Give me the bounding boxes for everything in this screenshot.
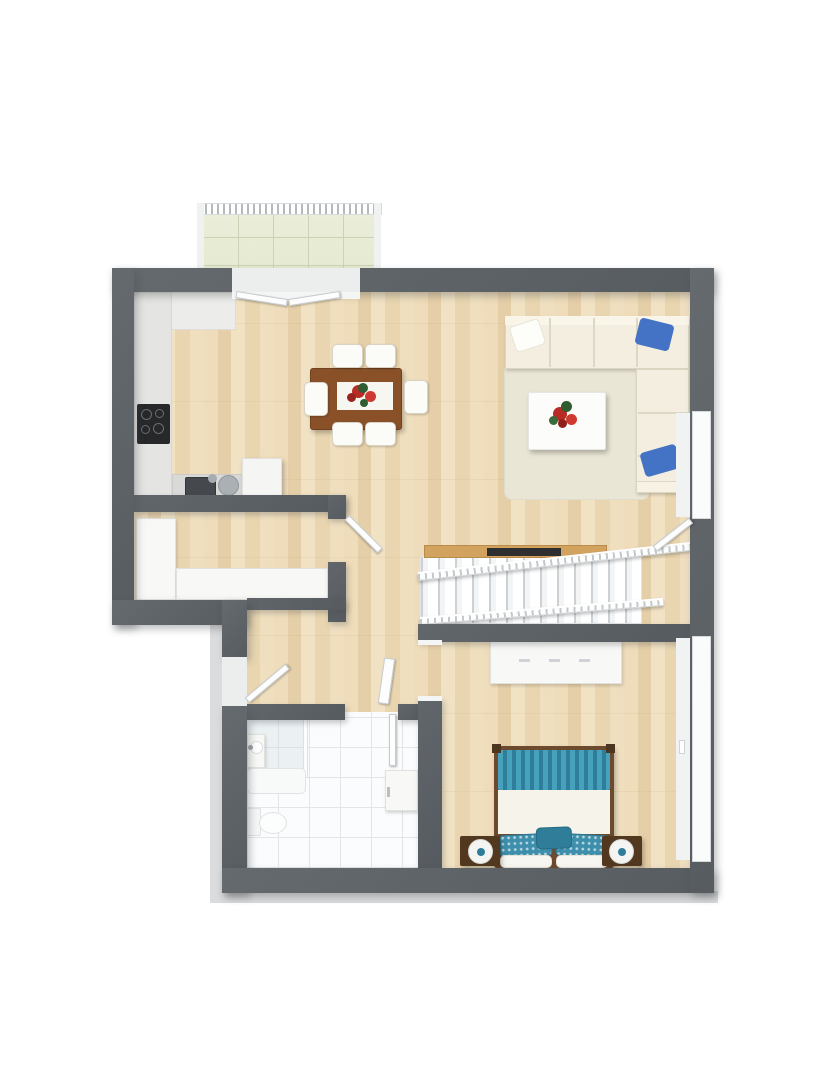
dining-chair-bottom-2	[365, 422, 396, 446]
storage-sideboard	[176, 568, 328, 600]
bedpost-left	[492, 744, 501, 753]
coffee-flower-leaf-2	[549, 416, 558, 425]
bed-blanket-teal	[498, 750, 610, 790]
shower-glass-panel	[303, 710, 308, 778]
floor-plan	[0, 0, 835, 1080]
sofa-seam-1	[549, 318, 551, 367]
bed-pillow-white-left	[500, 855, 552, 868]
floor-slab-left2	[210, 625, 222, 893]
balcony-door-threshold	[232, 268, 360, 292]
living-window-frame	[692, 411, 711, 519]
dining-chair-top-1	[332, 344, 363, 368]
lamp-right-center	[618, 848, 626, 856]
bathroom-wall-top-right	[398, 704, 420, 720]
bed-pillow-white-right	[556, 855, 608, 868]
kitchen-counter-left	[134, 292, 172, 496]
coffee-flower-3	[558, 419, 567, 428]
dining-flower-3	[347, 393, 356, 402]
storage-wall-right-lower	[328, 562, 346, 622]
storage-wardrobe	[136, 518, 176, 600]
bathroom-door-leaf	[389, 714, 396, 766]
sofa-seam-2	[593, 318, 595, 367]
dining-flower-leaf-2	[360, 399, 368, 407]
bath-vanity-handle	[387, 787, 390, 797]
bedroom-wall-top	[418, 624, 692, 642]
lamp-left-center	[477, 848, 485, 856]
burner-2	[155, 409, 164, 418]
bedroom-door-casing-top	[418, 640, 442, 645]
wall-bottom	[222, 868, 714, 893]
kitchen-appliance	[242, 458, 282, 500]
bedroom-dresser	[490, 640, 622, 684]
bedroom-window-frame	[692, 636, 711, 862]
coffee-flower-leaf	[561, 401, 572, 412]
burner-1	[141, 409, 152, 420]
dining-flower-leaf	[358, 383, 368, 393]
wall-left-upper	[112, 268, 134, 625]
bedroom-door-casing-bottom	[418, 696, 442, 701]
dining-chair-top-2	[365, 344, 396, 368]
burner-4	[153, 423, 164, 434]
living-window-sill	[676, 413, 690, 517]
kitchen-pot	[218, 475, 239, 496]
shower-bench	[247, 768, 306, 794]
toilet-bowl	[259, 812, 287, 834]
balcony-railing	[198, 203, 382, 215]
outside-mask-left	[100, 625, 222, 893]
entry-door-threshold	[222, 657, 247, 706]
wall-top	[112, 268, 712, 292]
dresser-handle-1	[519, 659, 530, 662]
bedroom-window-handle	[679, 740, 685, 754]
coffee-flower-2	[566, 414, 577, 425]
storage-wall-top	[134, 495, 346, 512]
bath-sink-faucet	[248, 745, 253, 750]
stairs-console-tv	[487, 548, 561, 556]
wall-left-lower	[222, 706, 247, 893]
wall-left-mid	[222, 600, 247, 657]
bedpost-right	[606, 744, 615, 753]
burner-3	[141, 425, 150, 434]
dining-chair-left	[304, 382, 328, 416]
dresser-handle-3	[579, 659, 590, 662]
storage-wall-right-upper	[328, 495, 346, 519]
dining-chair-right	[404, 380, 428, 414]
bed-cushion	[536, 826, 573, 849]
dresser-handle-2	[549, 659, 560, 662]
bedroom-wall-left-lower	[418, 698, 442, 868]
storage-wall-bottom	[247, 598, 346, 610]
kitchen-faucet	[208, 474, 217, 483]
bathroom-wall-top-left	[247, 704, 345, 720]
dining-chair-bottom-1	[332, 422, 363, 446]
